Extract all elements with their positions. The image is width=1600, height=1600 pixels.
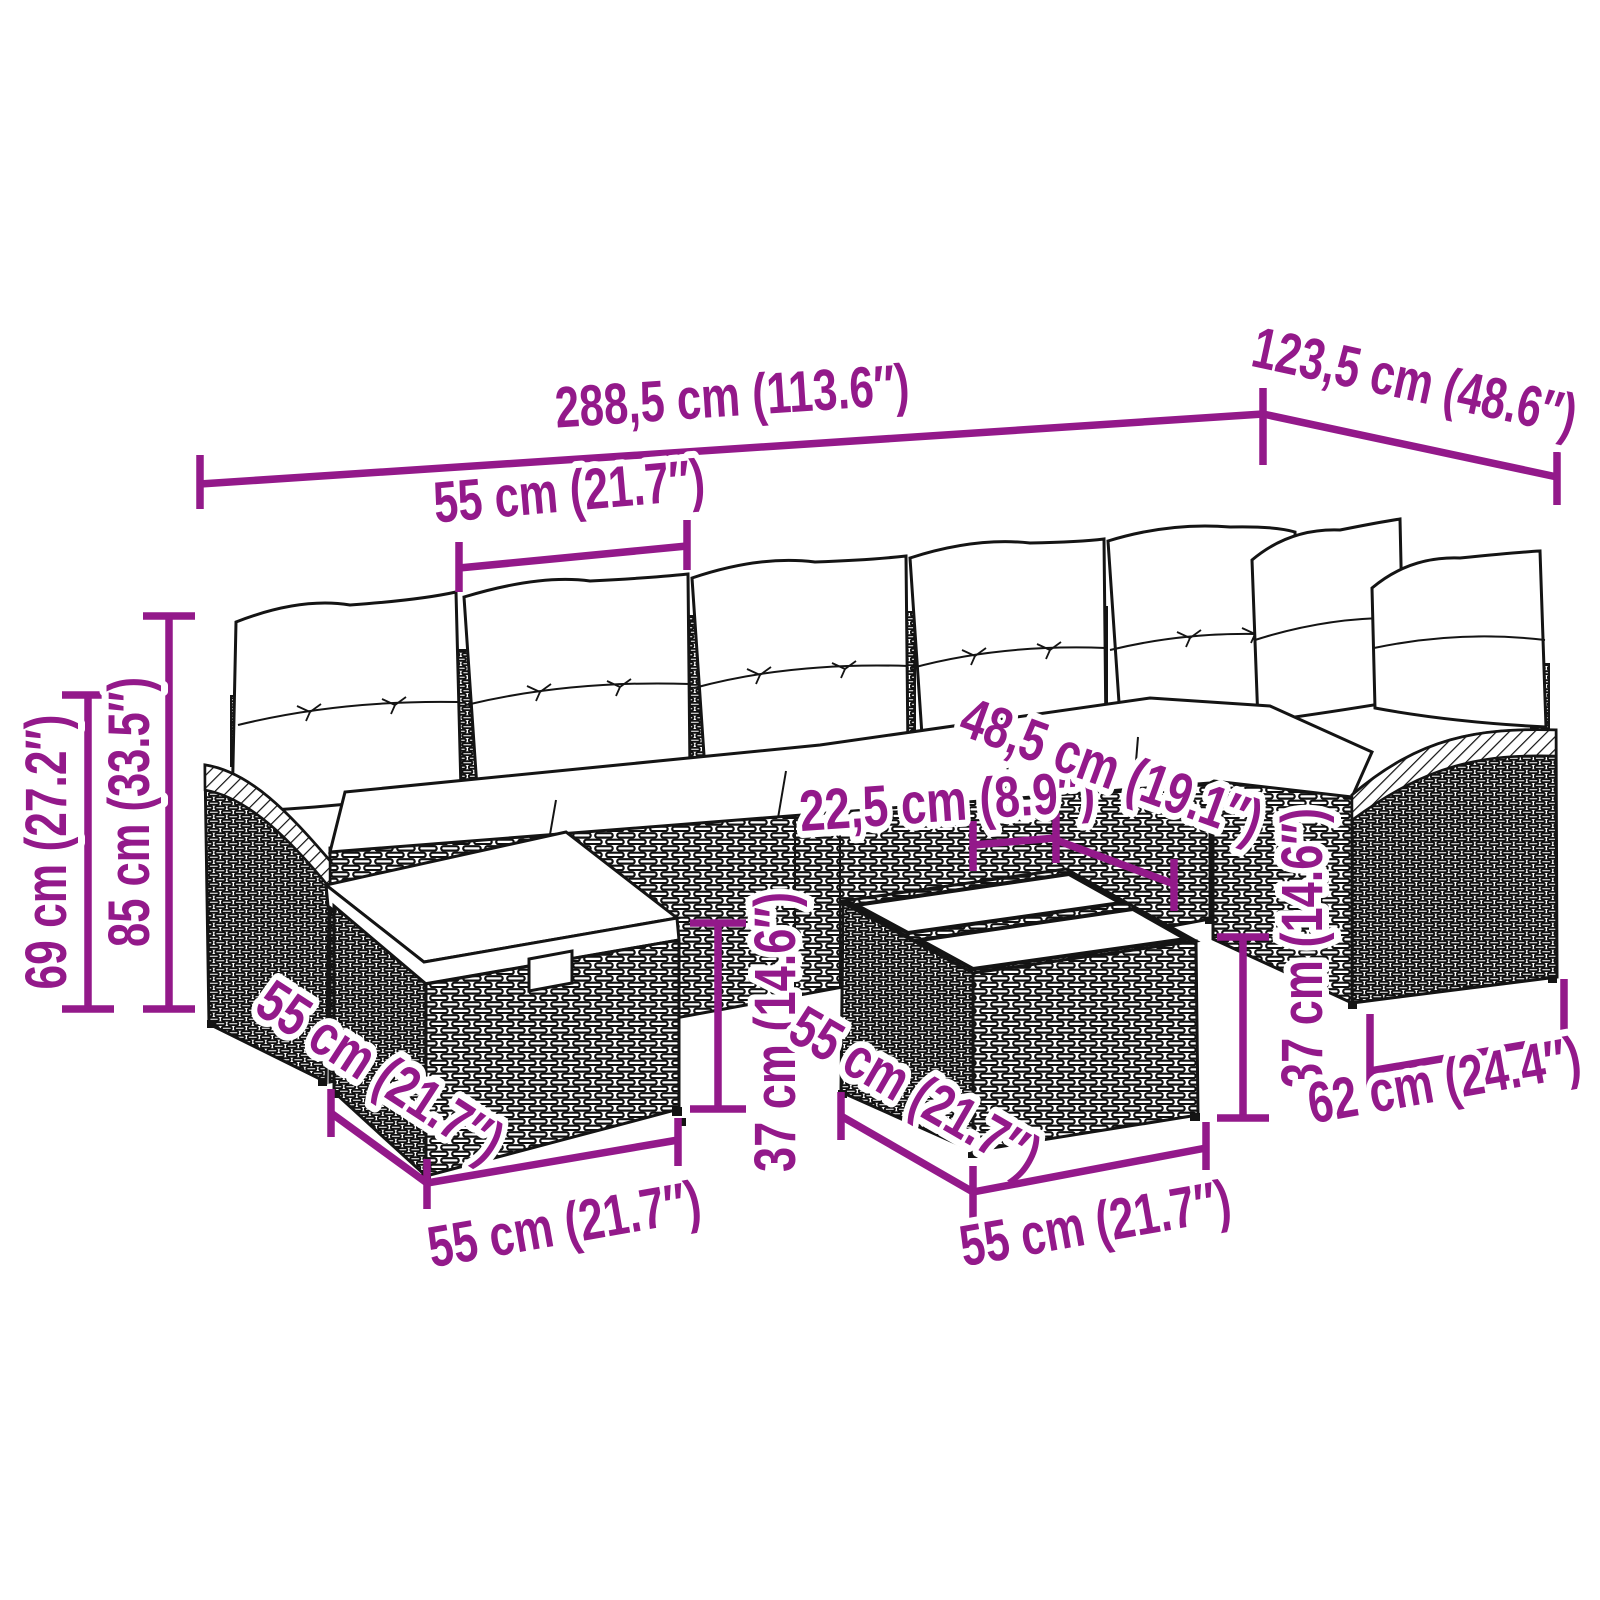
svg-text:37 cm (14.6″): 37 cm (14.6″) — [1271, 808, 1336, 1088]
svg-text:69 cm (27.2″): 69 cm (27.2″) — [13, 715, 78, 990]
svg-text:85 cm (33.5″): 85 cm (33.5″) — [97, 677, 161, 947]
